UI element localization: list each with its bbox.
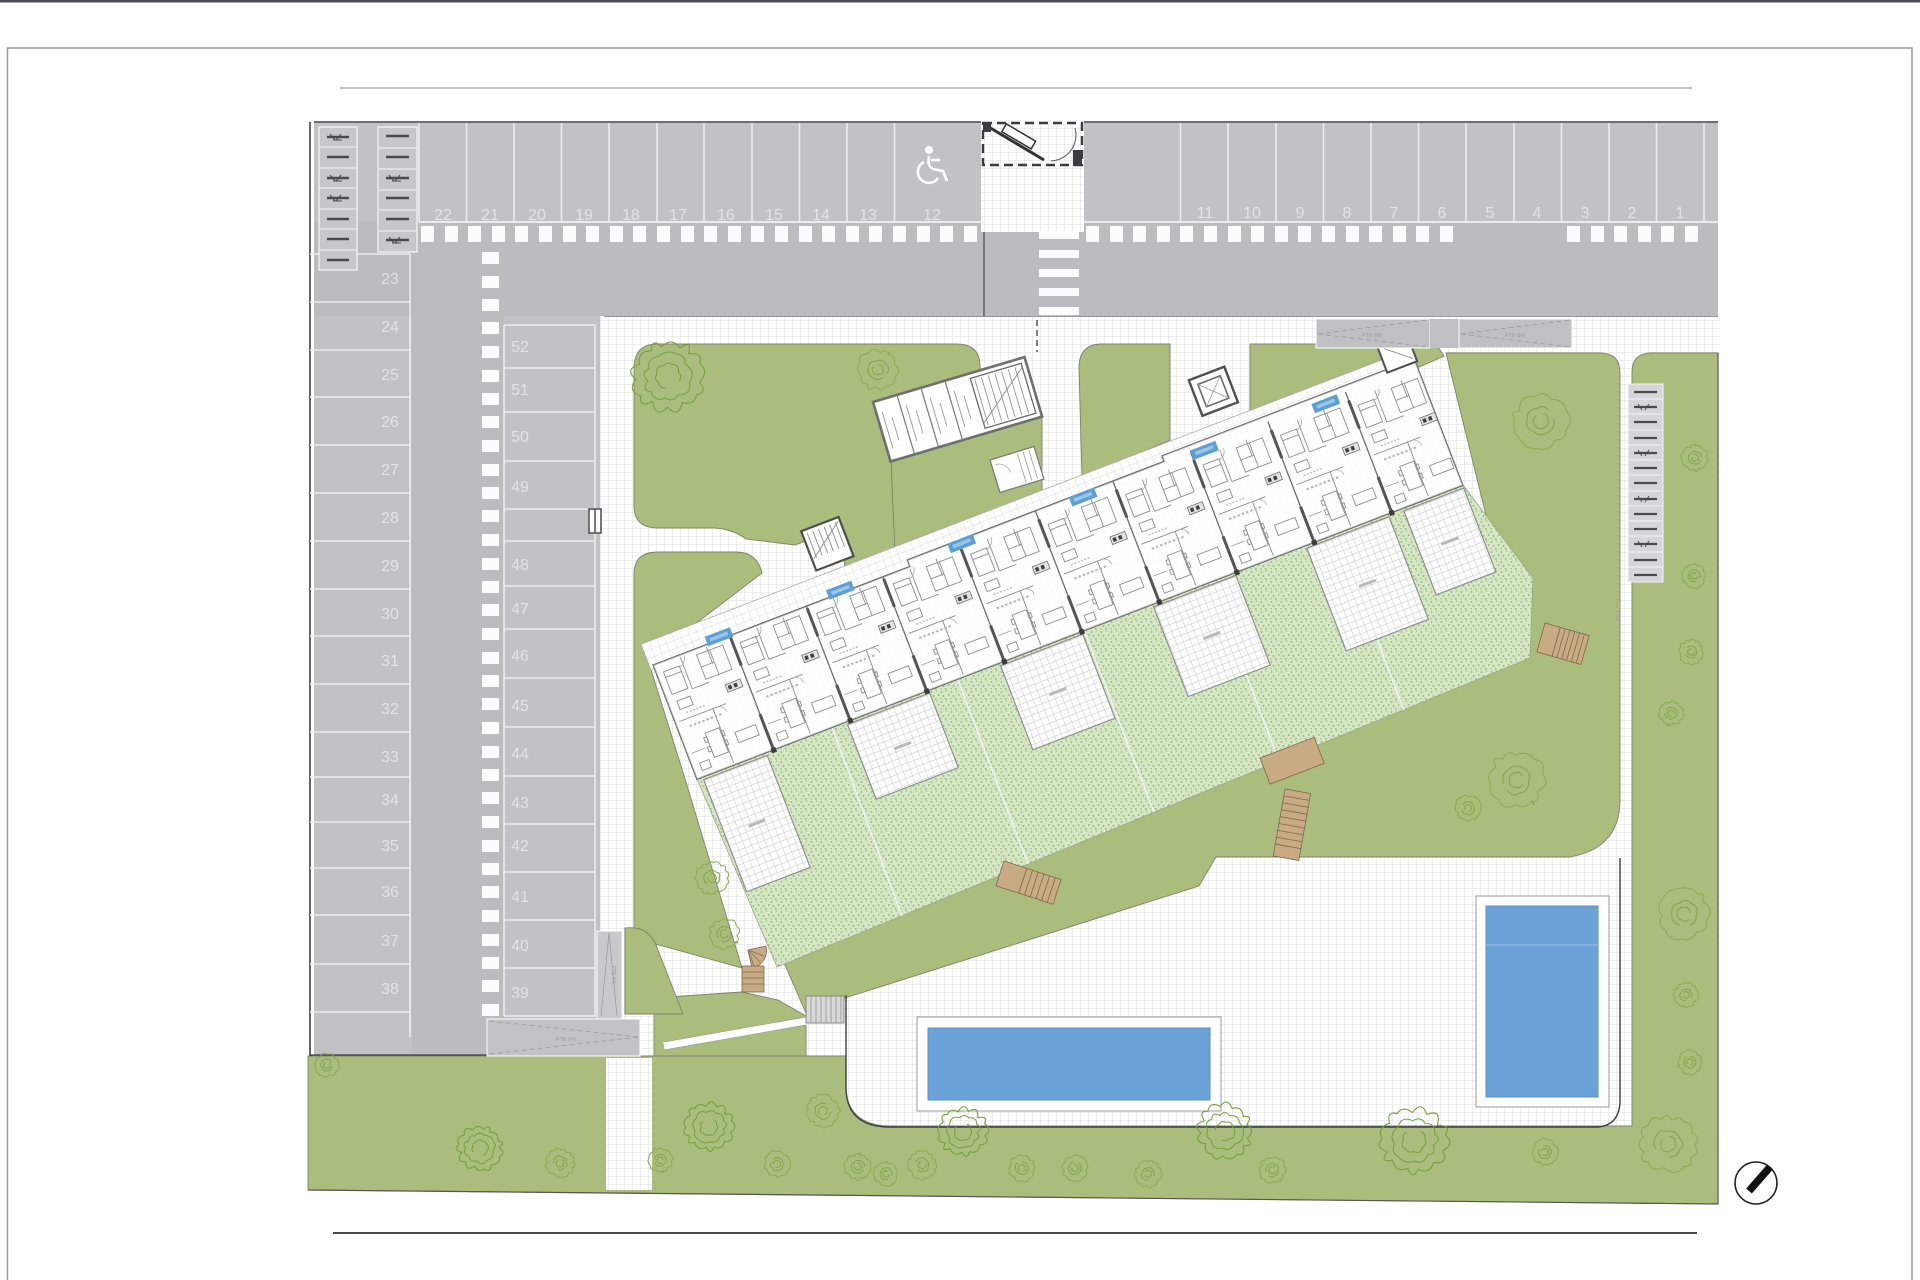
svg-text:29: 29 xyxy=(381,558,399,575)
svg-text:5: 5 xyxy=(1486,205,1495,222)
svg-text:26: 26 xyxy=(381,414,399,431)
svg-text:13: 13 xyxy=(859,207,877,224)
svg-text:2: 2 xyxy=(1628,205,1637,222)
svg-text:10: 10 xyxy=(1243,205,1261,222)
svg-text:38: 38 xyxy=(381,981,399,998)
svg-text:32: 32 xyxy=(381,701,399,718)
svg-text:6: 6 xyxy=(1438,205,1447,222)
svg-text:33: 33 xyxy=(381,749,399,766)
svg-text:11: 11 xyxy=(1197,205,1214,222)
svg-text:12: 12 xyxy=(923,207,941,224)
svg-text:31: 31 xyxy=(381,653,399,670)
svg-text:21: 21 xyxy=(481,207,499,224)
svg-text:52: 52 xyxy=(511,339,529,356)
svg-text:4: 4 xyxy=(1533,205,1542,222)
svg-text:22: 22 xyxy=(434,207,452,224)
svg-text:37: 37 xyxy=(381,933,399,950)
svg-text:1: 1 xyxy=(1676,205,1685,222)
svg-text:30: 30 xyxy=(381,606,399,623)
svg-text:16: 16 xyxy=(717,207,735,224)
svg-text:40: 40 xyxy=(511,938,529,955)
svg-text:45: 45 xyxy=(511,698,529,715)
svg-text:41: 41 xyxy=(511,889,529,906)
svg-text:PTE 1.5%: PTE 1.5% xyxy=(1614,599,1620,622)
svg-text:PTE 8%: PTE 8% xyxy=(1505,333,1525,339)
svg-text:PTE 6%: PTE 6% xyxy=(610,966,616,985)
svg-text:9: 9 xyxy=(1296,205,1305,222)
svg-text:39: 39 xyxy=(511,985,529,1002)
svg-text:44: 44 xyxy=(511,746,529,763)
svg-text:18: 18 xyxy=(622,207,640,224)
svg-text:8: 8 xyxy=(1343,205,1352,222)
svg-text:47: 47 xyxy=(511,601,529,618)
svg-text:19: 19 xyxy=(575,207,593,224)
svg-text:20: 20 xyxy=(528,207,546,224)
svg-text:25: 25 xyxy=(381,367,399,384)
svg-text:28: 28 xyxy=(381,510,399,527)
svg-text:27: 27 xyxy=(381,462,399,479)
svg-text:14: 14 xyxy=(812,207,830,224)
svg-text:24: 24 xyxy=(381,319,399,336)
svg-text:43: 43 xyxy=(511,795,529,812)
svg-text:42: 42 xyxy=(511,838,529,855)
svg-text:50: 50 xyxy=(511,429,529,446)
svg-text:36: 36 xyxy=(381,884,399,901)
svg-text:46: 46 xyxy=(511,648,529,665)
svg-text:3: 3 xyxy=(1581,205,1590,222)
svg-text:7: 7 xyxy=(1390,205,1399,222)
svg-text:15: 15 xyxy=(765,207,783,224)
svg-text:17: 17 xyxy=(669,207,687,224)
svg-text:48: 48 xyxy=(511,557,529,574)
svg-text:49: 49 xyxy=(511,479,529,496)
svg-text:PTE 6%: PTE 6% xyxy=(556,1037,576,1043)
svg-text:51: 51 xyxy=(511,382,529,399)
svg-text:23: 23 xyxy=(381,271,399,288)
svg-text:PTE 8%: PTE 8% xyxy=(1362,333,1382,339)
svg-text:35: 35 xyxy=(381,838,399,855)
svg-text:34: 34 xyxy=(381,792,399,809)
